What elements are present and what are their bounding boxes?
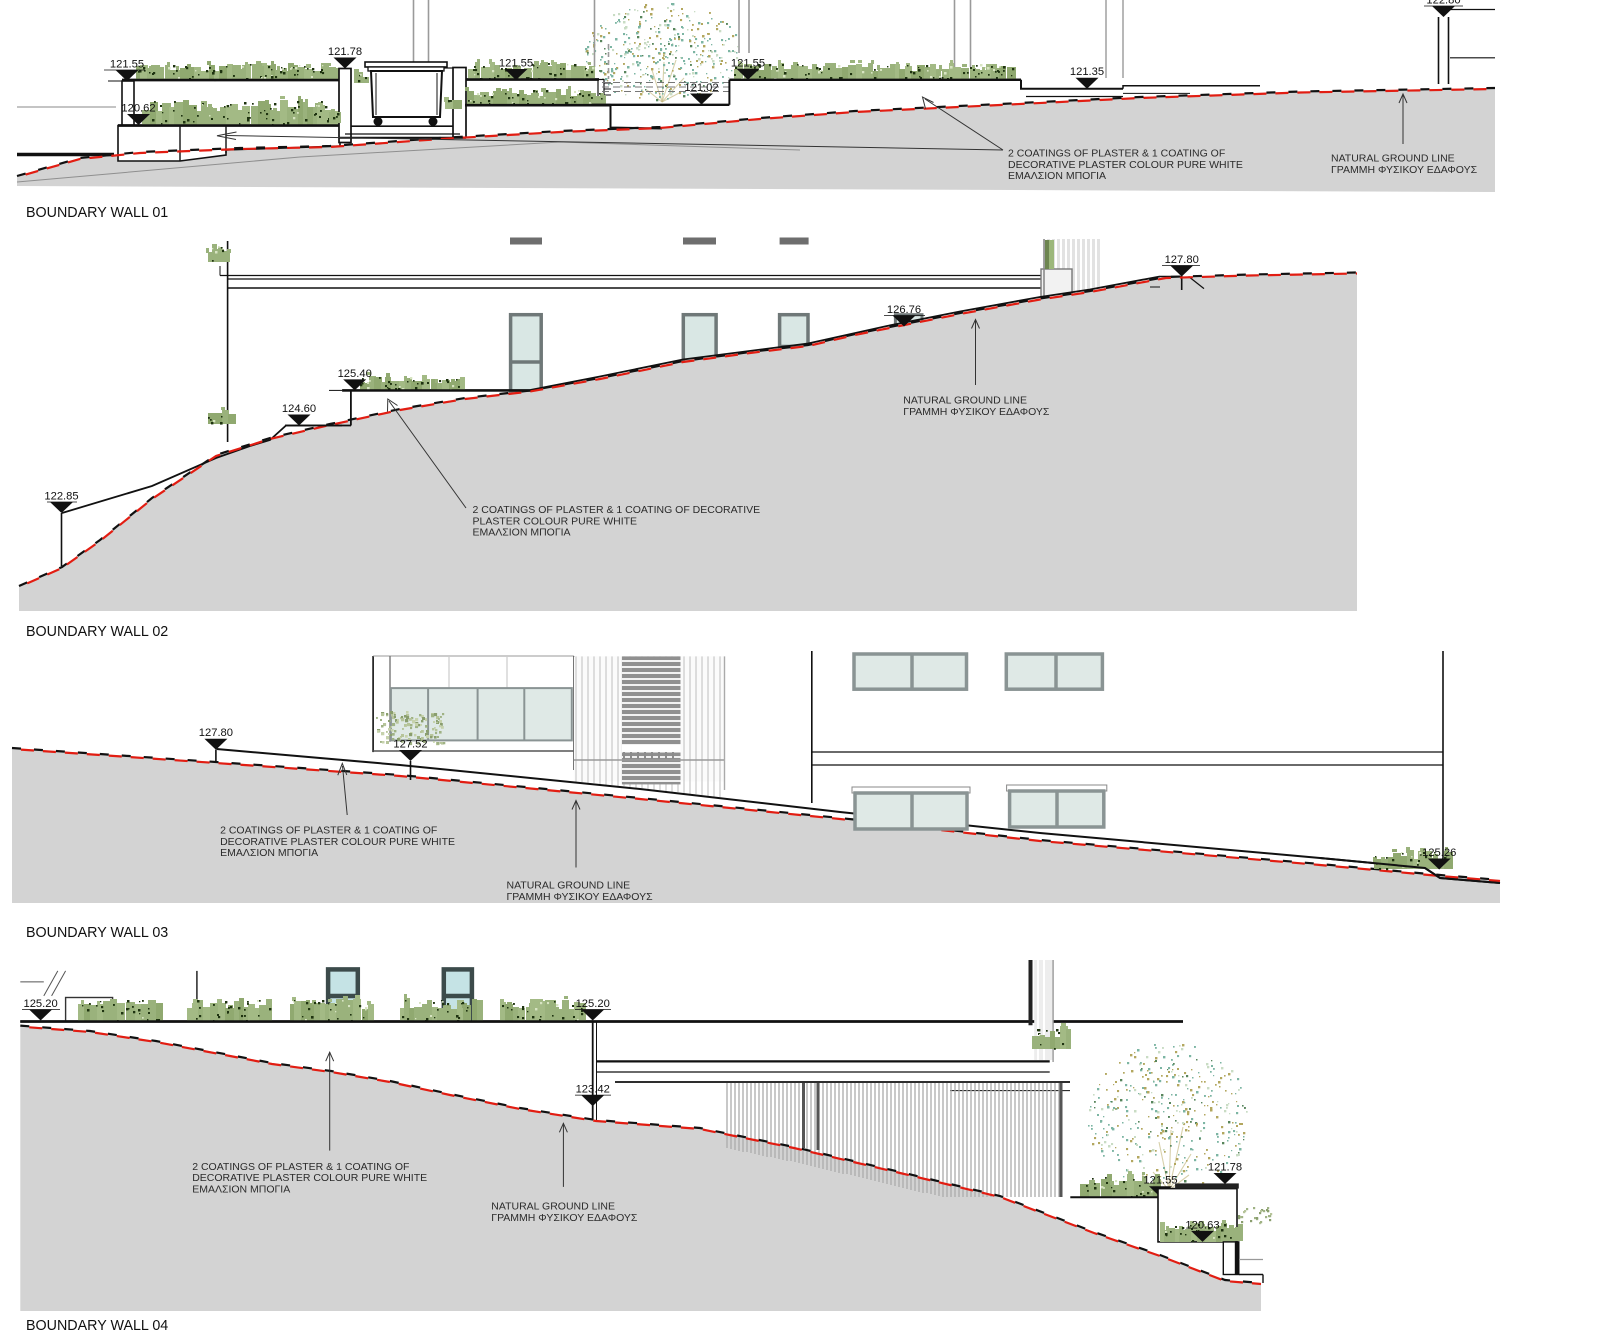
svg-text:DECORATIVE PLASTER COLOUR PURE: DECORATIVE PLASTER COLOUR PURE WHITE	[192, 1172, 427, 1184]
svg-text:NATURAL GROUND LINE: NATURAL GROUND LINE	[1331, 153, 1455, 165]
svg-text:ΓΡΑΜΜΗ ΦΥΣΙΚΟΥ ΕΔΑΦΟΥΣ: ΓΡΑΜΜΗ ΦΥΣΙΚΟΥ ΕΔΑΦΟΥΣ	[1331, 164, 1478, 176]
svg-text:NATURAL GROUND LINE: NATURAL GROUND LINE	[507, 880, 631, 892]
svg-text:ΕΜΑΛΣΙΟΝ ΜΠΟΓΙΑ: ΕΜΑΛΣΙΟΝ ΜΠΟΓΙΑ	[220, 847, 318, 859]
svg-text:121.55: 121.55	[499, 58, 533, 70]
svg-text:2 COATINGS OF PLASTER & 1 COAT: 2 COATINGS OF PLASTER & 1 COATING OF	[1008, 148, 1225, 160]
svg-text:123.42: 123.42	[576, 1084, 610, 1096]
svg-text:BOUNDARY WALL 04: BOUNDARY WALL 04	[26, 1318, 168, 1334]
svg-text:ΕΜΑΛΣΙΟΝ ΜΠΟΓΙΑ: ΕΜΑΛΣΙΟΝ ΜΠΟΓΙΑ	[192, 1184, 290, 1196]
svg-text:126.76: 126.76	[887, 304, 921, 316]
svg-text:121.55: 121.55	[110, 59, 144, 71]
svg-text:2 COATINGS OF PLASTER & 1 COAT: 2 COATINGS OF PLASTER & 1 COATING OF	[192, 1161, 409, 1173]
svg-text:127.80: 127.80	[1165, 254, 1199, 266]
svg-text:121.55: 121.55	[1143, 1175, 1177, 1187]
svg-text:125.40: 125.40	[338, 368, 372, 380]
svg-text:DECORATIVE PLASTER COLOUR PURE: DECORATIVE PLASTER COLOUR PURE WHITE	[220, 836, 455, 848]
svg-text:127.80: 127.80	[199, 727, 233, 739]
svg-text:122.80: 122.80	[1426, 0, 1460, 7]
svg-text:BOUNDARY WALL 01: BOUNDARY WALL 01	[26, 205, 168, 221]
svg-text:121.78: 121.78	[1208, 1162, 1242, 1174]
svg-text:2 COATINGS OF PLASTER & 1 COAT: 2 COATINGS OF PLASTER & 1 COATING OF	[220, 825, 437, 837]
svg-text:127.52: 127.52	[393, 739, 427, 751]
svg-text:124.60: 124.60	[282, 403, 316, 415]
svg-text:121.35: 121.35	[1070, 66, 1104, 78]
svg-text:ΓΡΑΜΜΗ ΦΥΣΙΚΟΥ ΕΔΑΦΟΥΣ: ΓΡΑΜΜΗ ΦΥΣΙΚΟΥ ΕΔΑΦΟΥΣ	[507, 891, 654, 903]
svg-text:120.63: 120.63	[1185, 1219, 1219, 1231]
svg-text:NATURAL GROUND LINE: NATURAL GROUND LINE	[491, 1201, 615, 1213]
svg-text:125.20: 125.20	[576, 998, 610, 1010]
svg-text:120.62: 120.62	[121, 103, 155, 115]
svg-text:121.78: 121.78	[328, 46, 362, 58]
svg-text:121.55: 121.55	[731, 57, 765, 69]
svg-text:122.85: 122.85	[44, 491, 78, 503]
svg-text:PLASTER COLOUR PURE WHITE: PLASTER COLOUR PURE WHITE	[473, 515, 638, 527]
svg-text:125.26: 125.26	[1422, 847, 1456, 859]
svg-text:NATURAL GROUND LINE: NATURAL GROUND LINE	[903, 395, 1027, 407]
svg-text:DECORATIVE PLASTER COLOUR PURE: DECORATIVE PLASTER COLOUR PURE WHITE	[1008, 159, 1243, 171]
svg-text:ΓΡΑΜΜΗ ΦΥΣΙΚΟΥ ΕΔΑΦΟΥΣ: ΓΡΑΜΜΗ ΦΥΣΙΚΟΥ ΕΔΑΦΟΥΣ	[491, 1212, 638, 1224]
svg-text:121.02: 121.02	[684, 82, 718, 94]
svg-text:ΕΜΑΛΣΙΟΝ ΜΠΟΓΙΑ: ΕΜΑΛΣΙΟΝ ΜΠΟΓΙΑ	[1008, 170, 1106, 182]
svg-text:ΓΡΑΜΜΗ ΦΥΣΙΚΟΥ ΕΔΑΦΟΥΣ: ΓΡΑΜΜΗ ΦΥΣΙΚΟΥ ΕΔΑΦΟΥΣ	[903, 406, 1050, 418]
svg-text:ΕΜΑΛΣΙΟΝ ΜΠΟΓΙΑ: ΕΜΑΛΣΙΟΝ ΜΠΟΓΙΑ	[473, 527, 571, 539]
svg-text:125.20: 125.20	[23, 998, 57, 1010]
svg-text:2 COATINGS OF PLASTER & 1 COAT: 2 COATINGS OF PLASTER & 1 COATING OF DEC…	[473, 504, 761, 516]
svg-text:BOUNDARY WALL 03: BOUNDARY WALL 03	[26, 925, 168, 941]
svg-text:BOUNDARY WALL 02: BOUNDARY WALL 02	[26, 624, 168, 640]
